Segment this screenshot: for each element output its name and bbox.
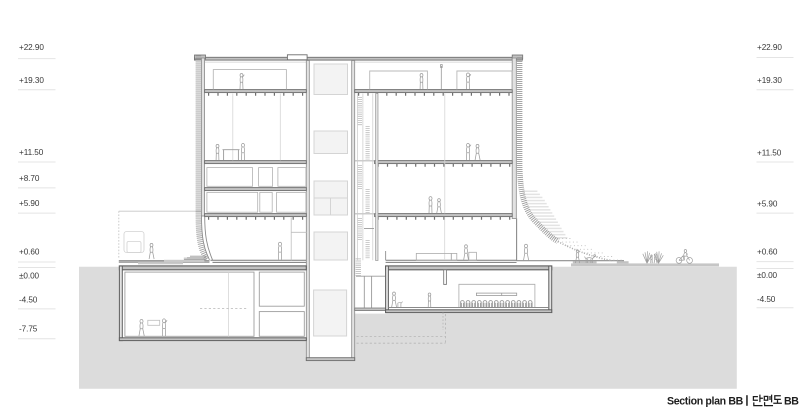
svg-text:-7.75: -7.75 — [19, 324, 38, 333]
svg-text:+11.50: +11.50 — [19, 148, 44, 157]
svg-text:±0.00: ±0.00 — [757, 271, 778, 280]
svg-text:±0.00: ±0.00 — [19, 272, 40, 281]
svg-text:+5.90: +5.90 — [19, 199, 40, 208]
svg-text:+0.60: +0.60 — [757, 248, 778, 257]
svg-text:-4.50: -4.50 — [757, 295, 776, 304]
svg-text:BB: BB — [784, 395, 799, 407]
svg-text:-4.50: -4.50 — [19, 295, 38, 304]
svg-text:+5.90: +5.90 — [757, 200, 778, 209]
svg-text:+11.50: +11.50 — [757, 149, 782, 158]
svg-text:+19.30: +19.30 — [19, 76, 44, 85]
svg-text:+19.30: +19.30 — [757, 76, 782, 85]
svg-text:+22.90: +22.90 — [757, 43, 782, 52]
svg-text:+0.60: +0.60 — [19, 248, 40, 257]
svg-text:+8.70: +8.70 — [19, 174, 40, 183]
svg-text:+22.90: +22.90 — [19, 43, 44, 52]
svg-text:Section plan BB: Section plan BB — [667, 395, 744, 407]
